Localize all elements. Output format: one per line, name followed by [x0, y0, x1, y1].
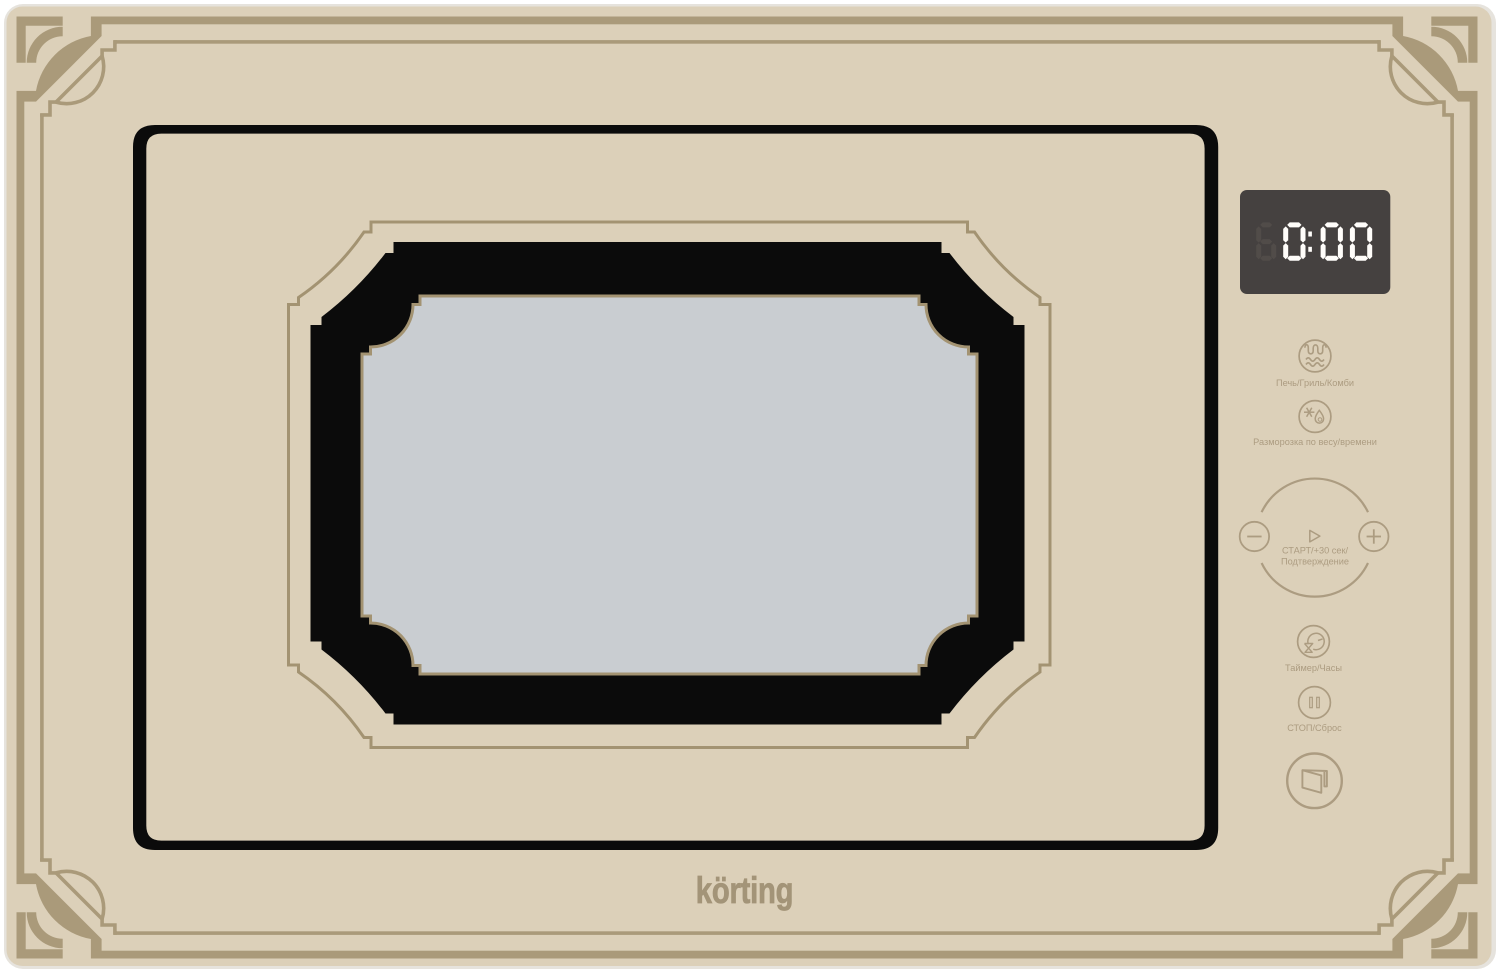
svg-text:СТАРТ/+30 сек/: СТАРТ/+30 сек/: [1282, 546, 1349, 556]
svg-text:körting: körting: [696, 870, 793, 911]
svg-text:Таймер/Часы: Таймер/Часы: [1285, 663, 1342, 673]
svg-text:Печь/Гриль/Комби: Печь/Гриль/Комби: [1276, 378, 1354, 388]
svg-text:Разморозка по весу/времени: Разморозка по весу/времени: [1253, 437, 1377, 447]
svg-text:СТОП/Сброс: СТОП/Сброс: [1287, 723, 1342, 733]
svg-text:Подтверждение: Подтверждение: [1281, 556, 1349, 566]
